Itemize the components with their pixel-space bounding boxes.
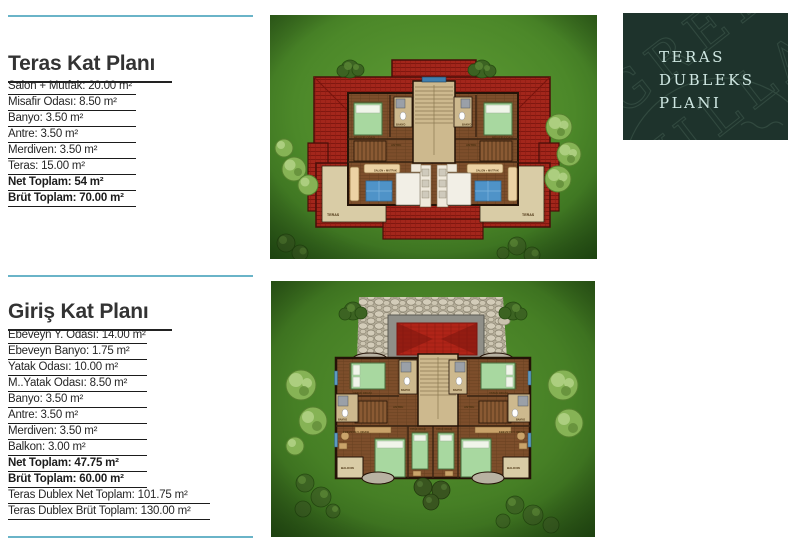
ground-floor-plan-image: YATAK ODASI YATAK ODASI BANYO BANYO ANTR… (271, 281, 595, 537)
badge-line-3: PLANI (659, 92, 755, 115)
badge-line-1: TERAS (659, 46, 755, 69)
badge-title: TERAS DUBLEKS PLANI (659, 46, 755, 115)
spec-row: M..Yatak Odası: 8.50 m² (8, 376, 147, 392)
spec-row: Antre: 3.50 m² (8, 127, 136, 143)
lawn-vignette (270, 15, 597, 259)
spec-row: Antre: 3.50 m² (8, 408, 147, 424)
spec-row: Teras: 15.00 m² (8, 159, 136, 175)
ground-plan-spec-list: Ebeveyn Y. Odası: 14.00 m² Ebeveyn Banyo… (8, 328, 210, 520)
terrace-plan-spec-list: Salon + Mutfak: 20.00 m² Misafir Odası: … (8, 79, 136, 207)
lawn-vignette (271, 281, 595, 537)
teal-rule-middle (8, 275, 253, 277)
plan-type-badge: GREEN VILLA TERAS DUBLEKS PLANI (623, 13, 788, 140)
spec-row: Merdiven: 3.50 m² (8, 424, 147, 440)
spec-row: Banyo: 3.50 m² (8, 392, 147, 408)
spec-row-net-total: Net Toplam: 54 m² (8, 175, 136, 191)
teal-rule-top (8, 15, 253, 17)
spec-row: Ebeveyn Banyo: 1.75 m² (8, 344, 147, 360)
spec-row: Yatak Odası: 10.00 m² (8, 360, 147, 376)
spec-row: Balkon: 3.00 m² (8, 440, 147, 456)
terrace-floor-plan-image: TERAS TERAS (270, 15, 597, 259)
spec-row-duplex-net-total: Teras Dublex Net Toplam: 101.75 m² (8, 488, 210, 504)
ground-plan-title: Giriş Kat Planı (8, 300, 172, 331)
spec-row-gross-total: Brüt Toplam: 60.00 m² (8, 472, 147, 488)
spec-row-duplex-gross-total: Teras Dublex Brüt Toplam: 130.00 m² (8, 504, 210, 520)
spec-row-net-total: Net Toplam: 47.75 m² (8, 456, 147, 472)
spec-row: Merdiven: 3.50 m² (8, 143, 136, 159)
spec-row: Salon + Mutfak: 20.00 m² (8, 79, 136, 95)
spec-row: Banyo: 3.50 m² (8, 111, 136, 127)
spec-row: Ebeveyn Y. Odası: 14.00 m² (8, 328, 147, 344)
badge-line-2: DUBLEKS (659, 69, 755, 92)
teal-rule-bottom (8, 536, 253, 538)
spec-row: Misafir Odası: 8.50 m² (8, 95, 136, 111)
spec-row-gross-total: Brüt Toplam: 70.00 m² (8, 191, 136, 207)
